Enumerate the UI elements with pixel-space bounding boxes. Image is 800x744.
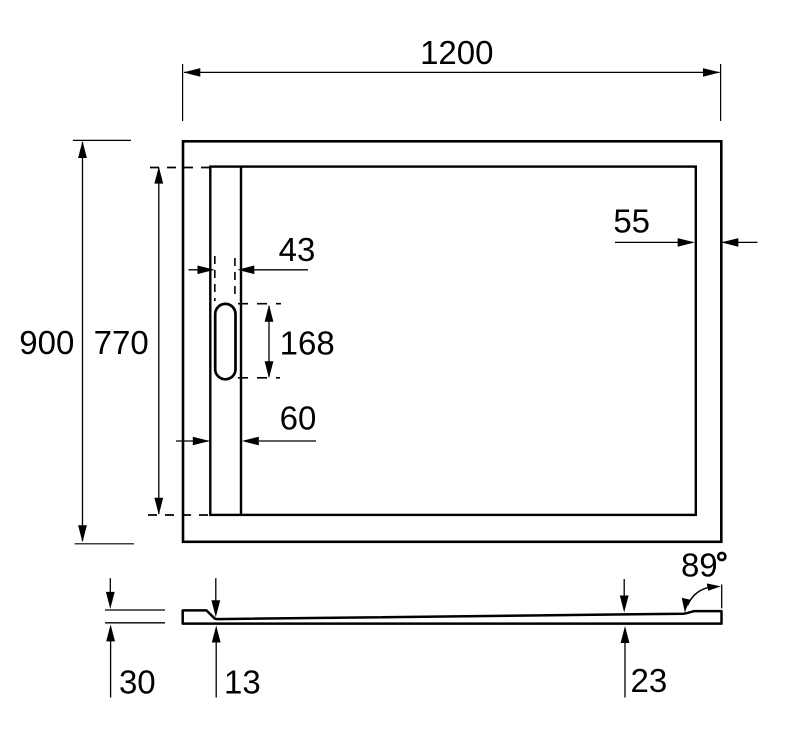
svg-text:13: 13 bbox=[224, 663, 261, 700]
svg-text:55: 55 bbox=[613, 202, 650, 239]
svg-text:23: 23 bbox=[631, 662, 668, 699]
svg-text:1200: 1200 bbox=[420, 34, 493, 71]
svg-text:43: 43 bbox=[279, 231, 316, 268]
svg-text:60: 60 bbox=[280, 399, 317, 436]
svg-text:168: 168 bbox=[280, 324, 335, 361]
svg-text:30: 30 bbox=[119, 663, 156, 700]
svg-text:89: 89 bbox=[681, 547, 718, 584]
svg-text:770: 770 bbox=[94, 324, 149, 361]
svg-text:900: 900 bbox=[19, 324, 74, 361]
